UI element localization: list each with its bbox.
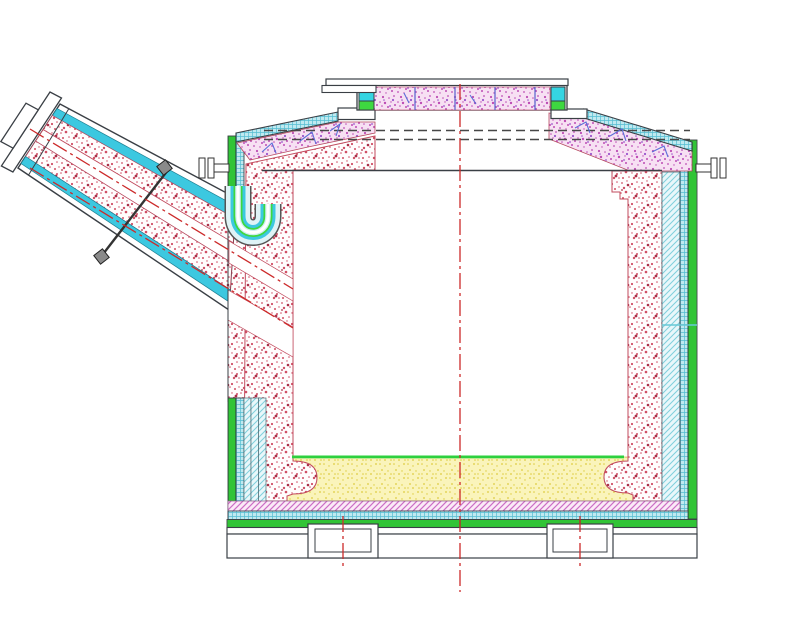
bottom-green-layer xyxy=(227,520,697,528)
bottom-pink-hatch-layer xyxy=(228,501,680,511)
left-wall-insulation-col-3 xyxy=(259,398,267,511)
left-wall-green-layer-upper xyxy=(228,136,236,189)
bolt-right-plate-1 xyxy=(711,158,717,178)
bottom-steel-plate xyxy=(227,528,697,535)
right-wall-green-layer xyxy=(688,140,697,519)
base-frame-body xyxy=(227,534,697,558)
bolt-left-shaft xyxy=(214,164,229,172)
furnace-section-drawing xyxy=(0,0,800,627)
right-wall-insulation-layer xyxy=(662,172,680,510)
lid-top-plate xyxy=(326,79,568,86)
lid-left-green-block xyxy=(359,101,374,110)
bottom-cyan-layer xyxy=(228,511,688,520)
bottom-insulation-stack xyxy=(227,501,697,534)
lid-refractory-blocks xyxy=(374,87,550,110)
bolt-left-plate-1 xyxy=(199,158,205,178)
bolt-right-shaft xyxy=(696,164,712,172)
bolt-left-plate-2 xyxy=(208,158,214,178)
right-wall-cyan-layer xyxy=(680,142,688,519)
hearth-top-line xyxy=(292,456,624,459)
bolt-right-plate-2 xyxy=(720,158,726,178)
drawing-canvas xyxy=(0,0,800,627)
left-wall-insulation-col-1 xyxy=(244,398,251,511)
lid-handle-plate xyxy=(322,86,376,93)
lid-right-cyan-block xyxy=(551,87,565,101)
removable-lid xyxy=(322,79,568,110)
lid-right-green-block xyxy=(551,101,565,110)
left-wall-insulation-col-2 xyxy=(251,398,259,511)
